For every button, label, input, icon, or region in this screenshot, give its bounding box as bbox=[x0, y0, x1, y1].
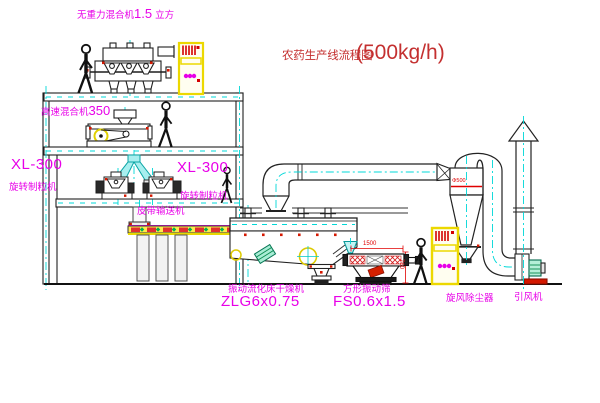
drawing-title-capacity: (500kg/h) bbox=[356, 42, 445, 64]
label-granulator-left-name: 旋转制粒机 bbox=[9, 183, 57, 193]
label-granulator-right-model: XL-300 bbox=[177, 160, 228, 176]
label-gravity-free-mixer: 无重力混合机1.5立方 bbox=[77, 7, 174, 21]
cad-process-flow-drawing: 无重力混合机1.5立方 高速混合机350 XL-300 旋转制粒机 XL-300… bbox=[0, 0, 600, 403]
high-speed-mixer-name: 高速混合机 bbox=[41, 107, 89, 118]
dryer-exhaust-duct bbox=[263, 164, 450, 212]
label-granulator-left-model: XL-300 bbox=[11, 157, 62, 173]
label-sieve-model: FS0.6x1.5 bbox=[333, 294, 406, 310]
label-belt-conveyor: 皮带输送机 bbox=[137, 207, 185, 217]
control-cabinet-bottom bbox=[432, 228, 458, 284]
person-figure-2 bbox=[159, 102, 172, 147]
label-granulator-right-name: 旋转制粒机 bbox=[180, 192, 228, 202]
control-cabinet-top bbox=[179, 43, 203, 94]
high-speed-mixer-model: 350 bbox=[89, 103, 111, 118]
dim-cyclone-diameter: Φ500 bbox=[452, 179, 466, 185]
person-figure-4 bbox=[414, 239, 427, 284]
gravity-mixer-name: 无重力混合机 bbox=[77, 10, 134, 21]
gravity-mixer-unit: 立方 bbox=[155, 10, 174, 21]
label-fan: 引风机 bbox=[514, 293, 543, 303]
dim-sieve-height: 760 bbox=[398, 259, 404, 269]
label-cyclone: 旋风除尘器 bbox=[446, 294, 494, 304]
dim-sieve-length: 1500 bbox=[363, 241, 376, 247]
gravity-free-mixer-machine bbox=[85, 40, 174, 96]
label-dryer-model: ZLG6x0.75 bbox=[221, 294, 300, 310]
label-high-speed-mixer: 高速混合机350 bbox=[41, 104, 110, 118]
gravity-mixer-size: 1.5 bbox=[134, 6, 152, 21]
induced-draft-fan-machine bbox=[515, 254, 547, 284]
